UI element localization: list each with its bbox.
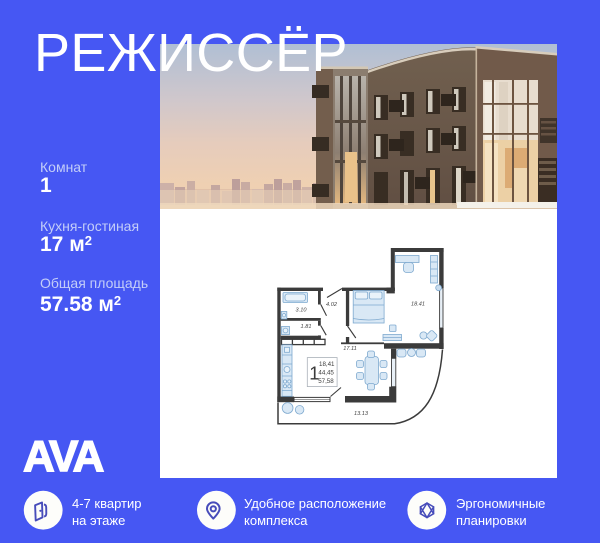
svg-text:18.41: 18.41 — [411, 302, 425, 308]
svg-text:1.81: 1.81 — [301, 324, 312, 330]
svg-text:57,58: 57,58 — [318, 378, 334, 385]
svg-text:3.10: 3.10 — [296, 308, 308, 314]
svg-text:13.13: 13.13 — [354, 411, 369, 417]
svg-text:44,45: 44,45 — [318, 370, 334, 377]
svg-text:17.11: 17.11 — [343, 346, 357, 352]
svg-text:4.02: 4.02 — [326, 302, 338, 308]
svg-text:18,41: 18,41 — [319, 361, 335, 368]
